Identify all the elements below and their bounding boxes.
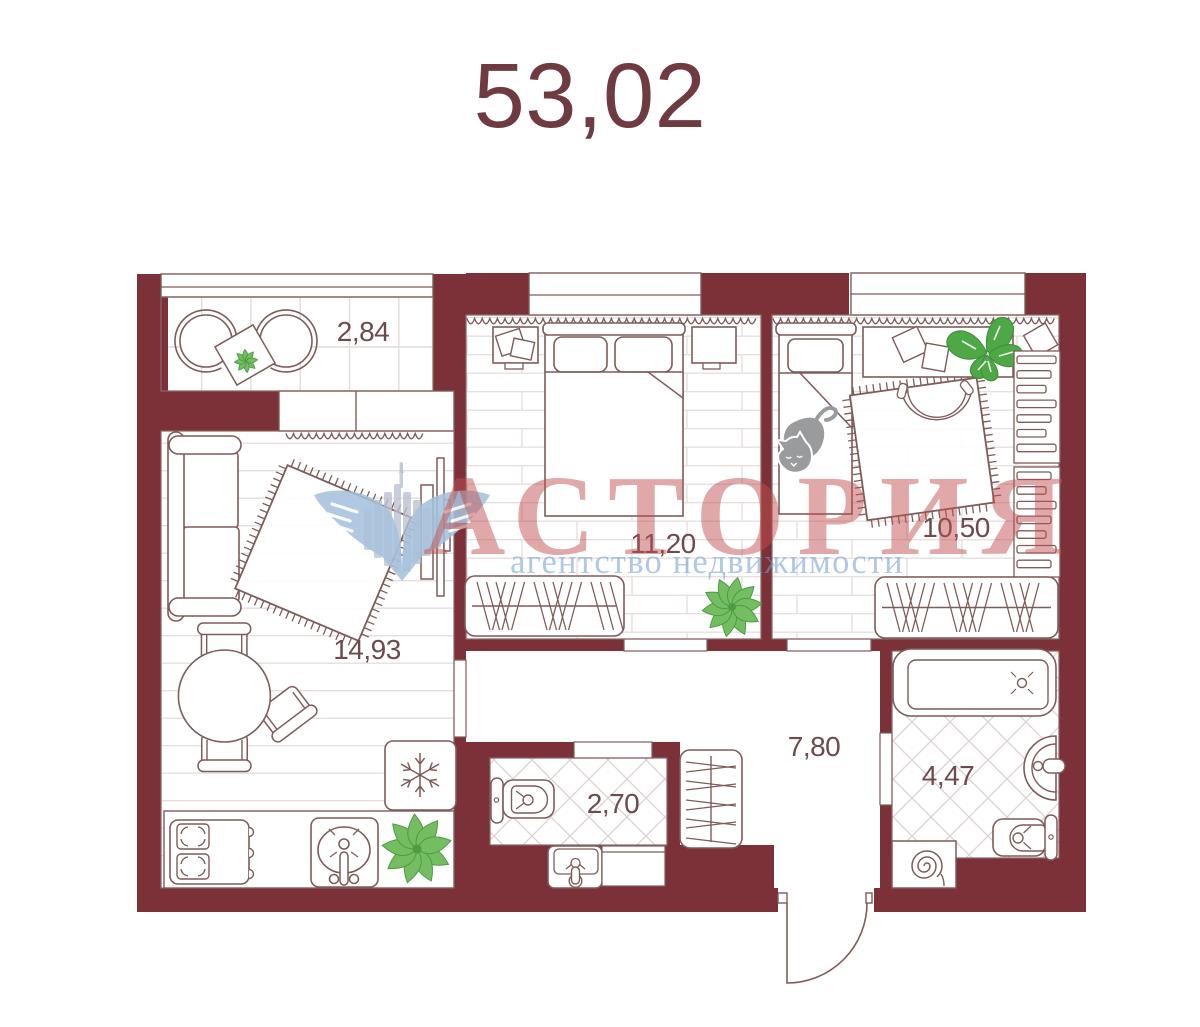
svg-text:53,02: 53,02 [474,45,707,147]
svg-text:4,47: 4,47 [922,760,975,791]
svg-text:2,84: 2,84 [337,316,390,347]
svg-text:агентство недвижимости: агентство недвижимости [510,543,904,581]
svg-text:2,70: 2,70 [587,788,640,819]
svg-text:14,93: 14,93 [333,634,401,665]
svg-text:7,80: 7,80 [788,731,841,762]
